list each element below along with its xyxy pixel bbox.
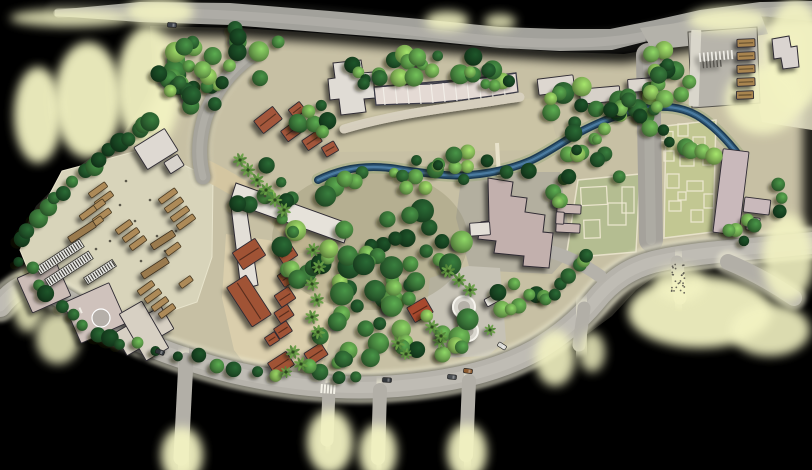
car: [463, 368, 473, 374]
figure-speck: [156, 235, 159, 238]
glow-blob: [14, 67, 62, 163]
figure-speck: [164, 250, 167, 253]
site-map-svg: [0, 0, 812, 470]
figure-speck: [109, 240, 112, 243]
figure-speck: [140, 260, 143, 263]
figure-speck: [257, 185, 260, 188]
car: [167, 22, 176, 27]
campus-map-viewport: [0, 0, 812, 470]
glow-blob: [579, 332, 605, 372]
figure-speck: [175, 230, 178, 233]
glow-blob: [10, 9, 130, 27]
glow-blob: [484, 14, 516, 30]
figure-speck: [149, 199, 152, 202]
glow-blob: [730, 304, 810, 356]
figure-speck: [125, 180, 128, 183]
glow-blob: [762, 214, 812, 302]
figure-speck: [119, 204, 122, 207]
figure-speck: [134, 220, 137, 223]
glow-blob: [425, 11, 469, 31]
small-white-a: [470, 222, 491, 236]
glow-blob: [535, 330, 575, 386]
car: [447, 374, 456, 380]
figure-speck: [95, 248, 98, 251]
car: [382, 377, 391, 382]
figure-speck: [264, 195, 267, 198]
glow-blob: [725, 66, 801, 134]
glow-blob: [654, 266, 706, 302]
dome: [92, 309, 110, 327]
glow-blob: [688, 7, 768, 33]
palm-tree: [268, 193, 283, 208]
